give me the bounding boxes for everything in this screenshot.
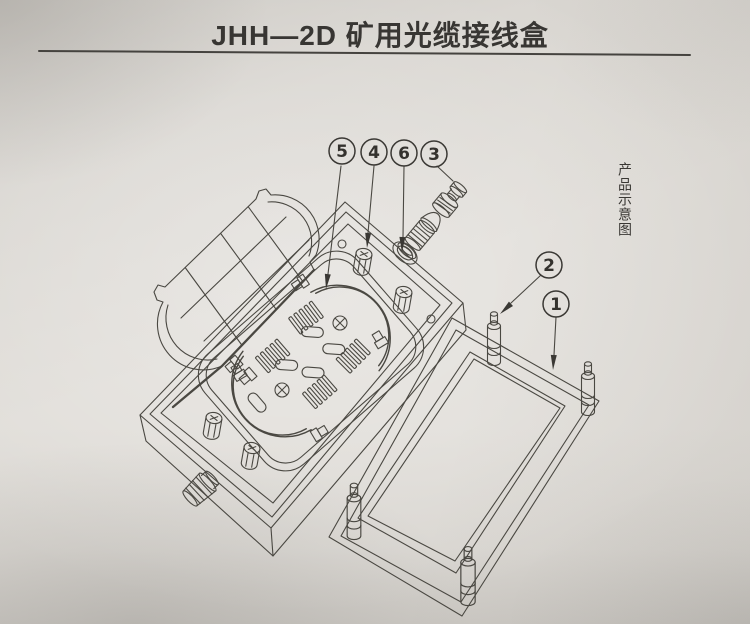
leader-line-3 [437, 166, 453, 181]
leader-line-5 [328, 166, 341, 274]
callout-5-number: 5 [336, 142, 348, 162]
splice-holder-comb [250, 293, 374, 417]
leader-line-6 [403, 166, 404, 237]
exploded-view-drawing: 5 4 6 3 2 1 [0, 0, 750, 624]
base-frame [329, 312, 599, 616]
main-box [140, 202, 466, 556]
lid-hinge-edge [173, 270, 314, 407]
callout-5: 5 [329, 138, 355, 164]
callout-2: 2 [536, 252, 562, 278]
callout-6-number: 6 [398, 144, 410, 164]
callout-6: 6 [391, 140, 417, 166]
cable-gland-mounted [180, 468, 222, 510]
callout-3-number: 3 [428, 145, 440, 165]
callout-4-number: 4 [368, 143, 380, 163]
photographed-diagram-page: JHH—2D 矿用光缆接线盒 产品示意图 [0, 0, 750, 624]
lid-grid [176, 190, 312, 359]
tray-screw [275, 316, 347, 397]
rim-hole [338, 240, 346, 248]
callout-4: 4 [361, 139, 387, 165]
leader-line-2 [511, 275, 541, 303]
callout-3: 3 [421, 141, 447, 167]
callout-1: 1 [543, 291, 569, 317]
callout-2-number: 2 [543, 256, 555, 276]
callout-1-number: 1 [550, 295, 562, 315]
fiber-entry-clip [211, 258, 410, 457]
tray-slot [235, 313, 353, 425]
leader-line-4 [368, 166, 374, 233]
leader-line-1 [554, 317, 556, 355]
